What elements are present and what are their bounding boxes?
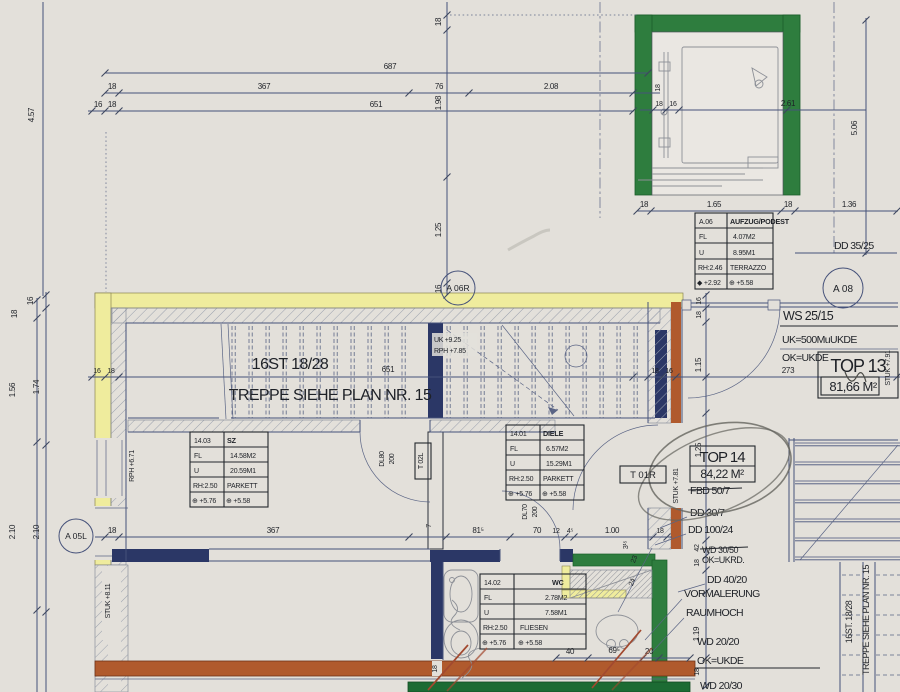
cell: ⊕ +5.58 xyxy=(542,491,566,498)
cell: AUFZUG/PODEST xyxy=(730,217,790,226)
note-dd10024: DD 100/24 xyxy=(688,524,734,536)
note-dd4020: DD 40/20 xyxy=(707,574,747,586)
marker-a05l: A 05L xyxy=(65,531,87,541)
level-stuk-top13: STUK +7.91 xyxy=(885,350,892,386)
cell: U xyxy=(484,610,489,617)
note-fbd507: FBD 50/7 xyxy=(690,485,730,497)
level-stuk-top14: STUK +7.81 xyxy=(673,468,680,504)
stair-break-symbol xyxy=(219,324,233,419)
level-stuk-left: STUK +8.11 xyxy=(105,583,112,618)
svg-text:18: 18 xyxy=(696,311,703,319)
note-wd3050: WD 30/50 xyxy=(702,545,739,555)
svg-text:18: 18 xyxy=(10,309,19,318)
svg-text:1.56: 1.56 xyxy=(8,382,17,397)
door-tag-t02l: T 02L xyxy=(418,452,425,469)
svg-text:16: 16 xyxy=(26,296,35,305)
svg-text:1.74: 1.74 xyxy=(32,379,41,394)
svg-text:18: 18 xyxy=(651,368,659,375)
svg-text:18: 18 xyxy=(640,200,649,209)
svg-text:4⁵: 4⁵ xyxy=(567,528,574,535)
svg-text:1.15: 1.15 xyxy=(694,357,703,372)
wall-top-yellow xyxy=(95,293,683,308)
cell: 7.58M1 xyxy=(545,610,567,617)
wall-top-hatch xyxy=(112,308,660,323)
svg-text:2.61: 2.61 xyxy=(781,99,796,108)
cell: 2.78M2 xyxy=(545,595,567,602)
cell: 14.01 xyxy=(510,431,527,438)
cell: RH:2.50 xyxy=(193,483,218,490)
level-rph-sz: RPH +6.71 xyxy=(129,450,136,482)
note-raumhoch: RAUMHOCH xyxy=(686,607,743,619)
cell: 14.02 xyxy=(484,580,501,587)
wall-divider xyxy=(428,432,443,549)
floor-plan-sheet: A.06 AUFZUG/PODEST FL 4.07M2 U 8.95M1 RH… xyxy=(0,0,900,692)
svg-text:1.00: 1.00 xyxy=(605,526,620,535)
cell: A.06 xyxy=(699,219,713,226)
stair-reference-label: TREPPE SIEHE PLAN NR. 15 xyxy=(229,387,432,404)
svg-text:16: 16 xyxy=(669,101,677,108)
wall-right-orange xyxy=(671,302,681,423)
svg-text:1.98: 1.98 xyxy=(434,95,443,110)
svg-text:16: 16 xyxy=(665,368,673,375)
svg-text:18: 18 xyxy=(656,528,664,535)
svg-text:16: 16 xyxy=(93,368,101,375)
cell: PARKETT xyxy=(227,483,258,490)
cell: PARKETT xyxy=(543,476,574,483)
stair-steps-label: 16ST 18/28 xyxy=(252,356,329,373)
svg-text:651: 651 xyxy=(382,365,395,374)
cell: 14.58M2 xyxy=(230,453,256,460)
cell: 14.03 xyxy=(194,438,211,445)
cell: FL xyxy=(484,595,492,602)
cell: ⊕ +5.76 xyxy=(192,498,216,505)
svg-text:16: 16 xyxy=(94,100,103,109)
cell: TERRAZZO xyxy=(730,265,767,272)
door-tag-t01r: T 01R xyxy=(630,470,656,481)
cell: 6.57M2 xyxy=(546,446,568,453)
svg-text:18: 18 xyxy=(432,665,439,673)
door-top13-arc xyxy=(688,306,780,398)
sink xyxy=(444,570,478,622)
note-wd2020: WD 20/20 xyxy=(697,636,740,648)
note-dd3525: DD 35/25 xyxy=(834,240,874,252)
cell: U xyxy=(699,250,704,257)
svg-text:687: 687 xyxy=(384,62,397,71)
room-table-diele: 14.01 DIELE FL 6.57M2 U 15.29M1 RH:2.50 … xyxy=(506,425,584,500)
svg-text:18: 18 xyxy=(107,368,115,375)
cell: RH:2.46 xyxy=(698,265,723,272)
cell: SZ xyxy=(227,436,237,445)
svg-text:40: 40 xyxy=(566,647,575,656)
cell: RH:2.50 xyxy=(483,625,508,632)
svg-text:18: 18 xyxy=(694,559,701,567)
door-t01r-arc xyxy=(573,425,658,510)
svg-text:70: 70 xyxy=(533,526,542,535)
level-rph: RPH +7.85 xyxy=(434,348,466,355)
stair-right-reference-label: TREPPE SIEHE PLAN NR. 15 xyxy=(861,564,871,675)
svg-text:3¹⁵: 3¹⁵ xyxy=(623,540,630,549)
note-vormalerung: VORMALERUNG xyxy=(684,588,760,600)
svg-text:12: 12 xyxy=(552,528,560,535)
svg-text:651: 651 xyxy=(370,100,383,109)
svg-text:18: 18 xyxy=(108,82,117,91)
floor-plan-drawing: A.06 AUFZUG/PODEST FL 4.07M2 U 8.95M1 RH… xyxy=(0,0,900,692)
svg-text:4.57: 4.57 xyxy=(27,107,36,122)
svg-text:18: 18 xyxy=(108,100,117,109)
note-okukrd: OK=UKRD. xyxy=(702,555,744,565)
note-uk500: UK=500MuUKDE xyxy=(782,334,857,346)
svg-text:76: 76 xyxy=(435,82,444,91)
svg-text:367: 367 xyxy=(258,82,271,91)
stair-right-steps-label: 16ST. 18/28 xyxy=(844,600,854,643)
svg-text:16: 16 xyxy=(696,297,703,305)
svg-text:5.06: 5.06 xyxy=(850,120,859,135)
svg-text:200: 200 xyxy=(389,453,396,464)
marker-a06r: A 06R xyxy=(446,283,469,293)
note-wd2030: WD 20/30 xyxy=(700,680,743,692)
cell: ⊕ +5.76 xyxy=(508,491,532,498)
level-uk: UK +9.25 xyxy=(434,337,461,344)
cell: 15.29M1 xyxy=(546,461,572,468)
cell: ⊕ +5.58 xyxy=(518,640,542,647)
svg-text:18: 18 xyxy=(434,17,443,26)
svg-text:69⁵: 69⁵ xyxy=(608,646,619,655)
svg-text:7: 7 xyxy=(426,524,433,528)
cell: U xyxy=(510,461,515,468)
cell: ⊕ +5.76 xyxy=(482,640,506,647)
cell: U xyxy=(194,468,199,475)
cell: FL xyxy=(194,453,202,460)
svg-text:18: 18 xyxy=(784,200,793,209)
cell: DIELE xyxy=(543,429,564,438)
svg-text:18: 18 xyxy=(108,526,117,535)
svg-text:18: 18 xyxy=(694,668,701,676)
cell: FL xyxy=(510,446,518,453)
cell: FLIESEN xyxy=(520,625,548,632)
svg-text:18: 18 xyxy=(655,101,663,108)
wall-wc-green-top xyxy=(573,554,655,566)
svg-text:273: 273 xyxy=(782,366,795,375)
door-tag-dl80: DL80 xyxy=(379,451,386,467)
cell: 8.95M1 xyxy=(733,250,755,257)
svg-text:2.10: 2.10 xyxy=(8,524,17,539)
stair-right xyxy=(789,438,900,692)
room-table-sz: 14.03 SZ FL 14.58M2 U 20.59M1 RH:2.50 PA… xyxy=(190,432,268,507)
note-okukde: OK=UKDE xyxy=(782,352,829,364)
cell: RH:2.50 xyxy=(509,476,534,483)
cell: 20.59M1 xyxy=(230,468,256,475)
svg-text:367: 367 xyxy=(267,526,280,535)
cell: ⊕ +5.58 xyxy=(226,498,250,505)
note-okukde2: OK=UKDE xyxy=(697,655,744,667)
room-table-a06: A.06 AUFZUG/PODEST FL 4.07M2 U 8.95M1 RH… xyxy=(695,213,790,289)
cell: ⊕ +5.58 xyxy=(729,280,753,287)
cell: FL xyxy=(699,234,707,241)
svg-text:42: 42 xyxy=(694,544,701,552)
cell: ◆ +2.92 xyxy=(697,280,721,287)
note-ws: WS 25/15 xyxy=(783,309,834,323)
cell: WC xyxy=(552,578,564,587)
marker-a08: A 08 xyxy=(833,284,853,295)
svg-text:2.08: 2.08 xyxy=(544,82,559,91)
svg-text:1.65: 1.65 xyxy=(707,200,722,209)
svg-text:81⁵: 81⁵ xyxy=(472,526,483,535)
cell: 4.07M2 xyxy=(733,234,755,241)
svg-text:2.10: 2.10 xyxy=(32,524,41,539)
svg-text:1.36: 1.36 xyxy=(842,200,857,209)
door-tag-dl70: DL70 xyxy=(522,504,529,520)
svg-text:200: 200 xyxy=(532,506,539,517)
top14-label: TOP 14 xyxy=(699,449,745,466)
svg-text:18: 18 xyxy=(655,84,662,92)
top14-area: 84,22 M² xyxy=(700,467,744,481)
svg-text:1.25: 1.25 xyxy=(434,222,443,237)
